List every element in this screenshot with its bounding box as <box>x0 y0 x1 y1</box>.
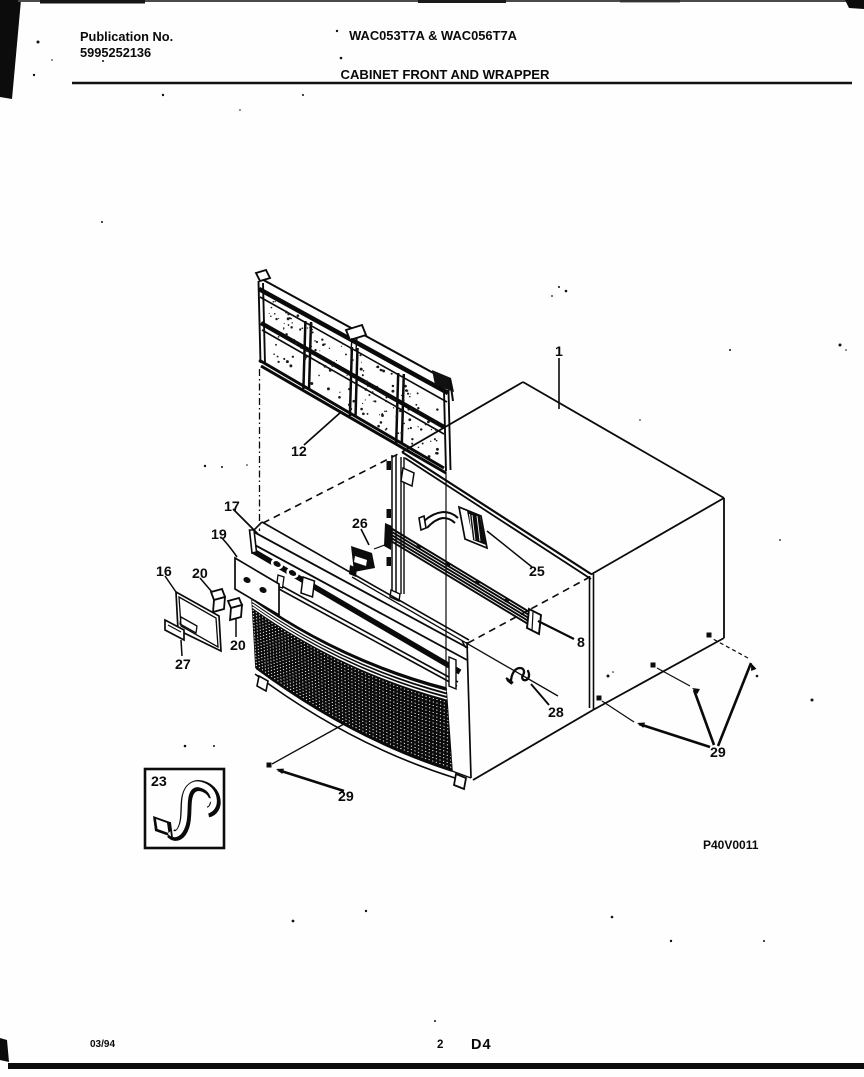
svg-text:8: 8 <box>577 635 585 651</box>
svg-text:28: 28 <box>548 705 564 721</box>
svg-text:P40V0011: P40V0011 <box>703 838 759 852</box>
svg-text:1: 1 <box>555 344 563 360</box>
svg-text:20: 20 <box>192 566 208 582</box>
svg-text:D4: D4 <box>471 1037 492 1053</box>
svg-text:16: 16 <box>156 564 172 580</box>
svg-text:2: 2 <box>437 1039 443 1051</box>
svg-text:17: 17 <box>224 499 240 515</box>
svg-text:23: 23 <box>151 774 167 790</box>
svg-text:WAC053T7A & WAC056T7A: WAC053T7A & WAC056T7A <box>349 28 517 43</box>
svg-text:26: 26 <box>352 516 368 532</box>
svg-text:5995252136: 5995252136 <box>80 45 151 60</box>
svg-text:03/94: 03/94 <box>90 1039 115 1050</box>
svg-text:25: 25 <box>529 564 545 580</box>
svg-text:29: 29 <box>710 745 726 761</box>
svg-text:29: 29 <box>338 789 354 805</box>
svg-text:12: 12 <box>291 444 307 460</box>
svg-text:Publication No.: Publication No. <box>80 29 173 44</box>
svg-text:20: 20 <box>230 638 246 654</box>
svg-text:CABINET FRONT AND WRAPPER: CABINET FRONT AND WRAPPER <box>340 67 550 82</box>
svg-text:19: 19 <box>211 527 227 543</box>
svg-text:27: 27 <box>175 657 191 673</box>
